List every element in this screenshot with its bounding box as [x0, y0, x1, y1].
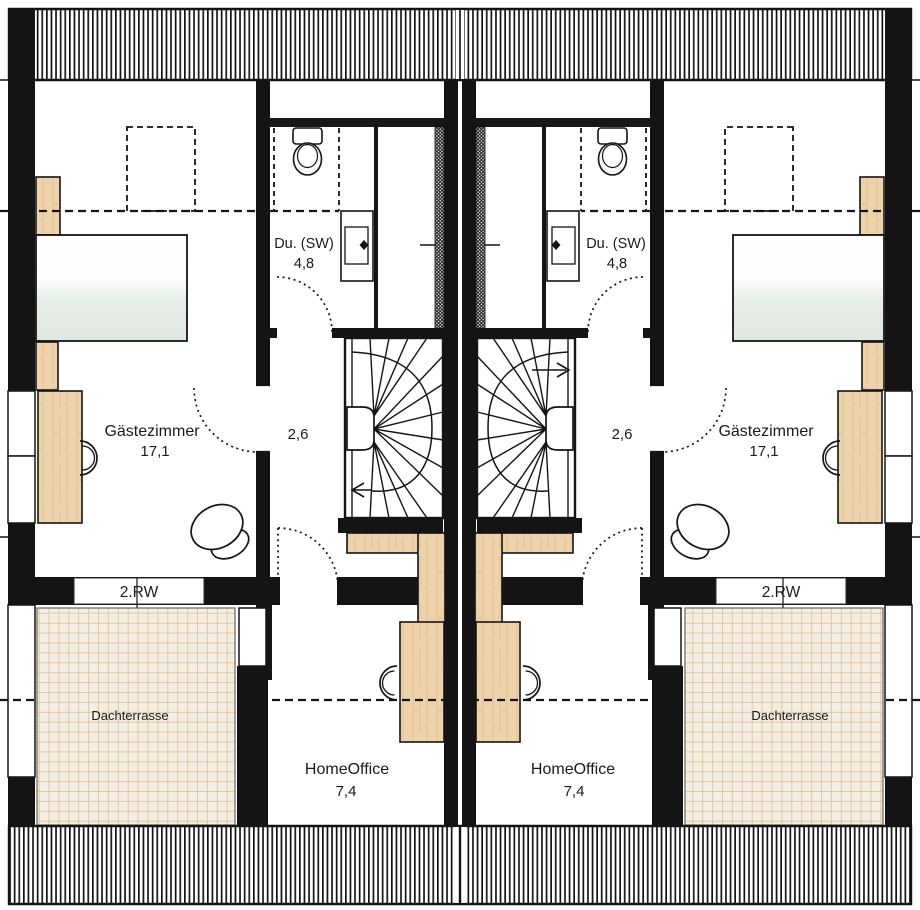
room-area-shower-left: 4,8 — [294, 256, 314, 272]
room-label-terrace-right: Dachterrasse — [751, 708, 828, 723]
guest-door-swing — [194, 388, 258, 452]
stair-landing — [347, 407, 374, 450]
washbasin-icon — [341, 211, 373, 281]
floor-plan-page: Gästezimmer 17,1 Gästezimmer 17,1 Du. (S… — [0, 0, 920, 910]
window-left-upper — [8, 391, 35, 456]
unit-right-graphics — [459, 8, 920, 905]
room-label-terrace-left: Dachterrasse — [91, 708, 168, 723]
outer-wall-left-upper — [8, 81, 35, 391]
wardrobe-mid — [36, 342, 58, 390]
roof-band-top — [8, 8, 461, 81]
room-label-guest-left: Gästezimmer — [104, 423, 200, 440]
room-label-office-right: HomeOffice — [531, 761, 615, 778]
room-area-guest-right: 17,1 — [749, 443, 778, 460]
desk-chair-office — [380, 666, 397, 700]
room-area-guest-left: 17,1 — [140, 443, 169, 460]
bed — [36, 235, 187, 341]
terrace-office-wall-lower — [237, 666, 268, 825]
room-label-shower-left: Du. (SW) — [274, 236, 334, 252]
wardrobe-top — [36, 177, 60, 235]
room-area-office-right: 7,4 — [564, 783, 585, 800]
room-area-shower-right: 4,8 — [607, 256, 627, 272]
room-label-guest-right: Gästezimmer — [718, 423, 814, 440]
outer-windows — [8, 391, 35, 523]
skylight-dashed — [127, 127, 195, 211]
room-area-hall-left: 2,6 — [288, 426, 309, 443]
door-opening-office — [280, 576, 337, 606]
room-label-office-left: HomeOffice — [305, 761, 389, 778]
guest-shower-wall-upper — [256, 81, 270, 385]
staircase — [345, 338, 443, 518]
armchair-icon — [183, 496, 253, 565]
escape-label-left: 2.RW — [120, 584, 159, 601]
party-wall-insulation — [435, 127, 444, 330]
floor-plan-drawing: Gästezimmer 17,1 Gästezimmer 17,1 Du. (S… — [0, 0, 920, 910]
roof-band-bottom — [8, 825, 460, 905]
guest-desk — [38, 391, 82, 523]
under-stair-wall — [338, 518, 443, 533]
room-area-office-left: 7,4 — [336, 783, 357, 800]
outer-wall-left-mid — [8, 523, 35, 579]
guest-shower-wall-lower — [256, 452, 270, 579]
shower-bottom-wall-a — [256, 328, 277, 338]
guest-door-jambs — [256, 386, 270, 452]
terrace-rail-left — [8, 605, 35, 777]
terrace-rail-right — [239, 608, 266, 666]
room-label-shower-right: Du. (SW) — [586, 236, 646, 252]
shower-door-swing — [277, 277, 332, 332]
knee-wall — [270, 118, 444, 127]
toilet-icon — [293, 128, 322, 175]
outer-wall-left-terrace — [8, 777, 35, 825]
escape-label-right: 2.RW — [762, 584, 801, 601]
office-wood-strip — [418, 533, 445, 625]
bottom-wall-guest — [8, 577, 418, 605]
shower-inner-wall — [374, 127, 378, 328]
window-left-lower — [8, 456, 35, 523]
unit-left-graphics — [0, 8, 461, 905]
office-desk — [400, 622, 444, 742]
room-area-hall-right: 2,6 — [612, 426, 633, 443]
party-wall — [444, 81, 458, 825]
